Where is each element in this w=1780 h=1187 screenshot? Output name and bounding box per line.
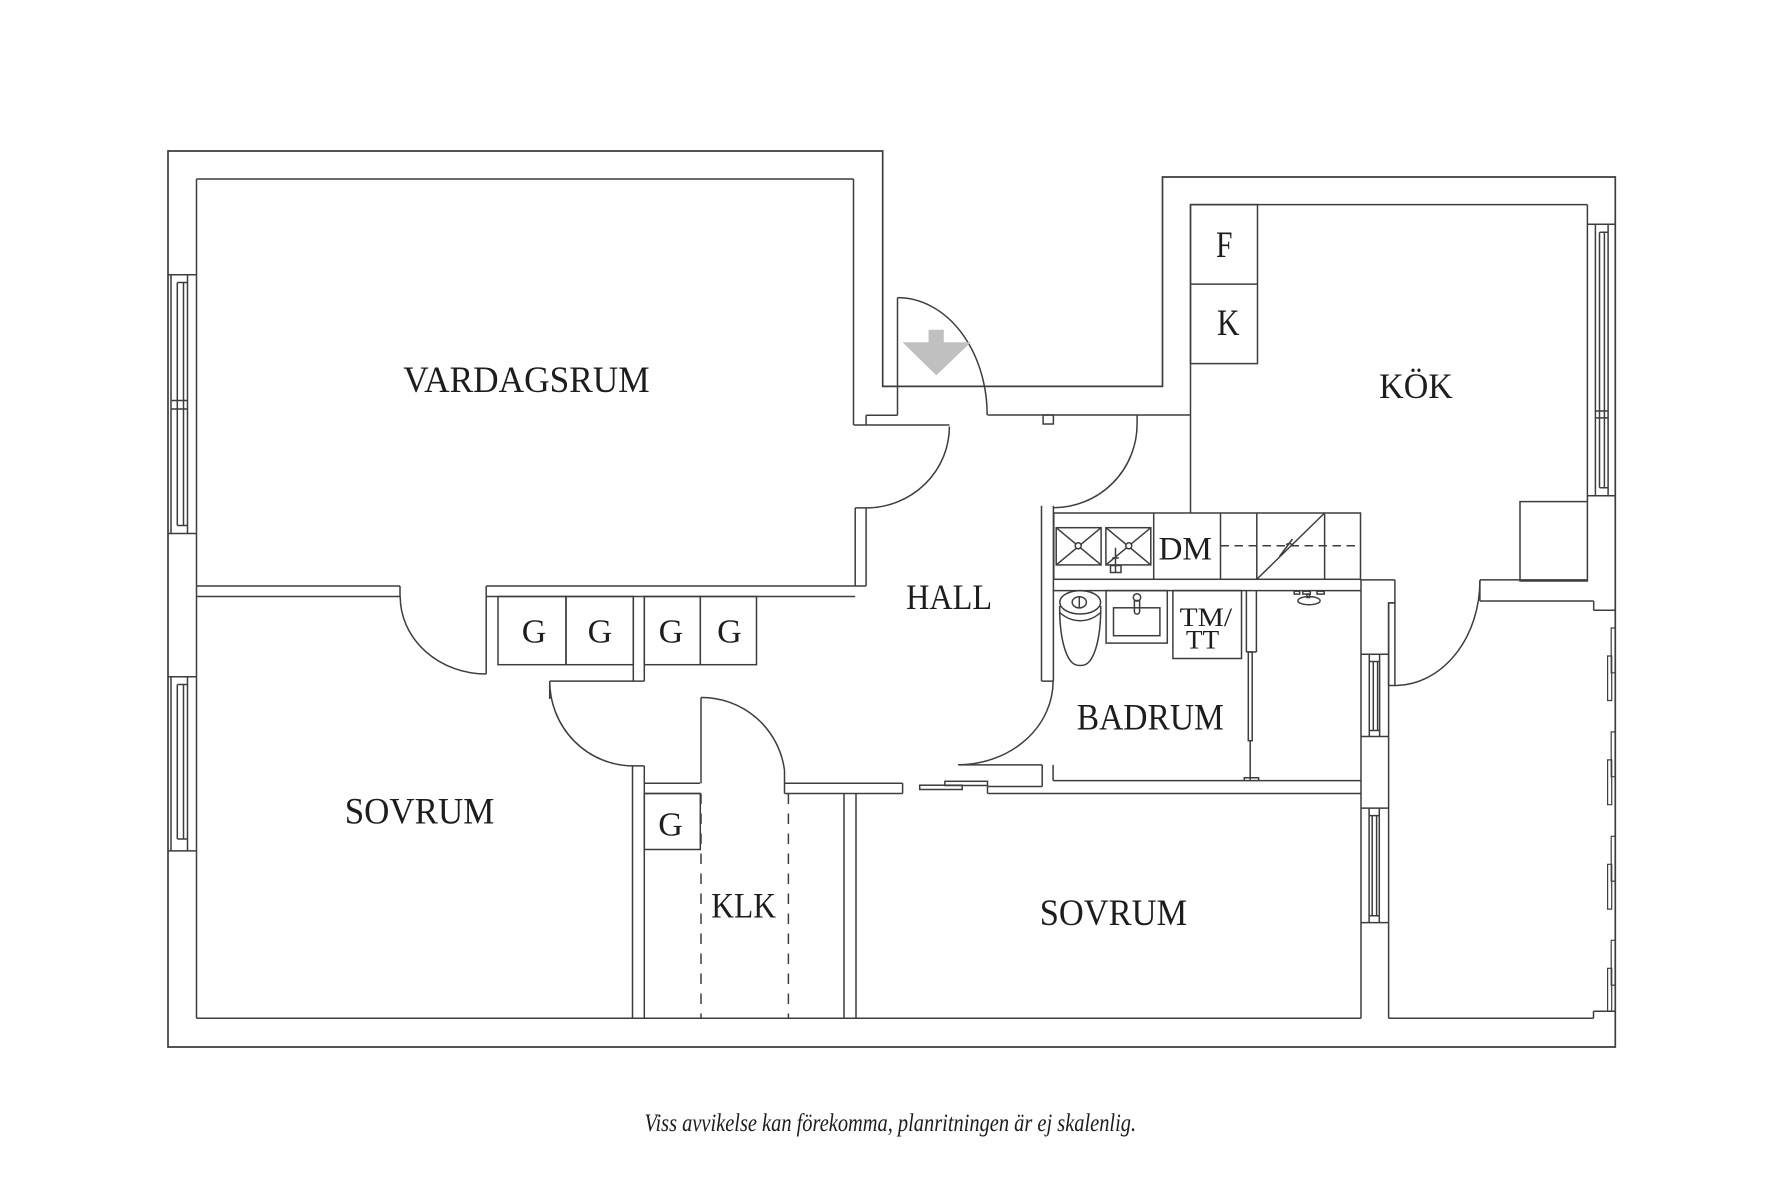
svg-text:VARDAGSRUM: VARDAGSRUM [403,360,649,401]
svg-text:SOVRUM: SOVRUM [1040,893,1187,934]
svg-text:KÖK: KÖK [1379,366,1453,406]
svg-text:SOVRUM: SOVRUM [345,791,495,832]
svg-text:F: F [1216,224,1233,265]
svg-text:G: G [659,614,684,651]
svg-text:HALL: HALL [906,577,992,617]
svg-text:DM: DM [1158,532,1212,568]
svg-text:G: G [588,614,613,651]
svg-text:KLK: KLK [711,886,776,926]
svg-text:G: G [658,807,683,844]
svg-text:Viss avvikelse kan förekomma,: Viss avvikelse kan förekomma, planritnin… [645,1110,1137,1137]
svg-text:K: K [1217,302,1240,343]
svg-text:G: G [522,614,547,651]
svg-text:BADRUM: BADRUM [1077,697,1224,738]
svg-text:G: G [717,614,742,651]
svg-text:TT: TT [1186,625,1219,655]
